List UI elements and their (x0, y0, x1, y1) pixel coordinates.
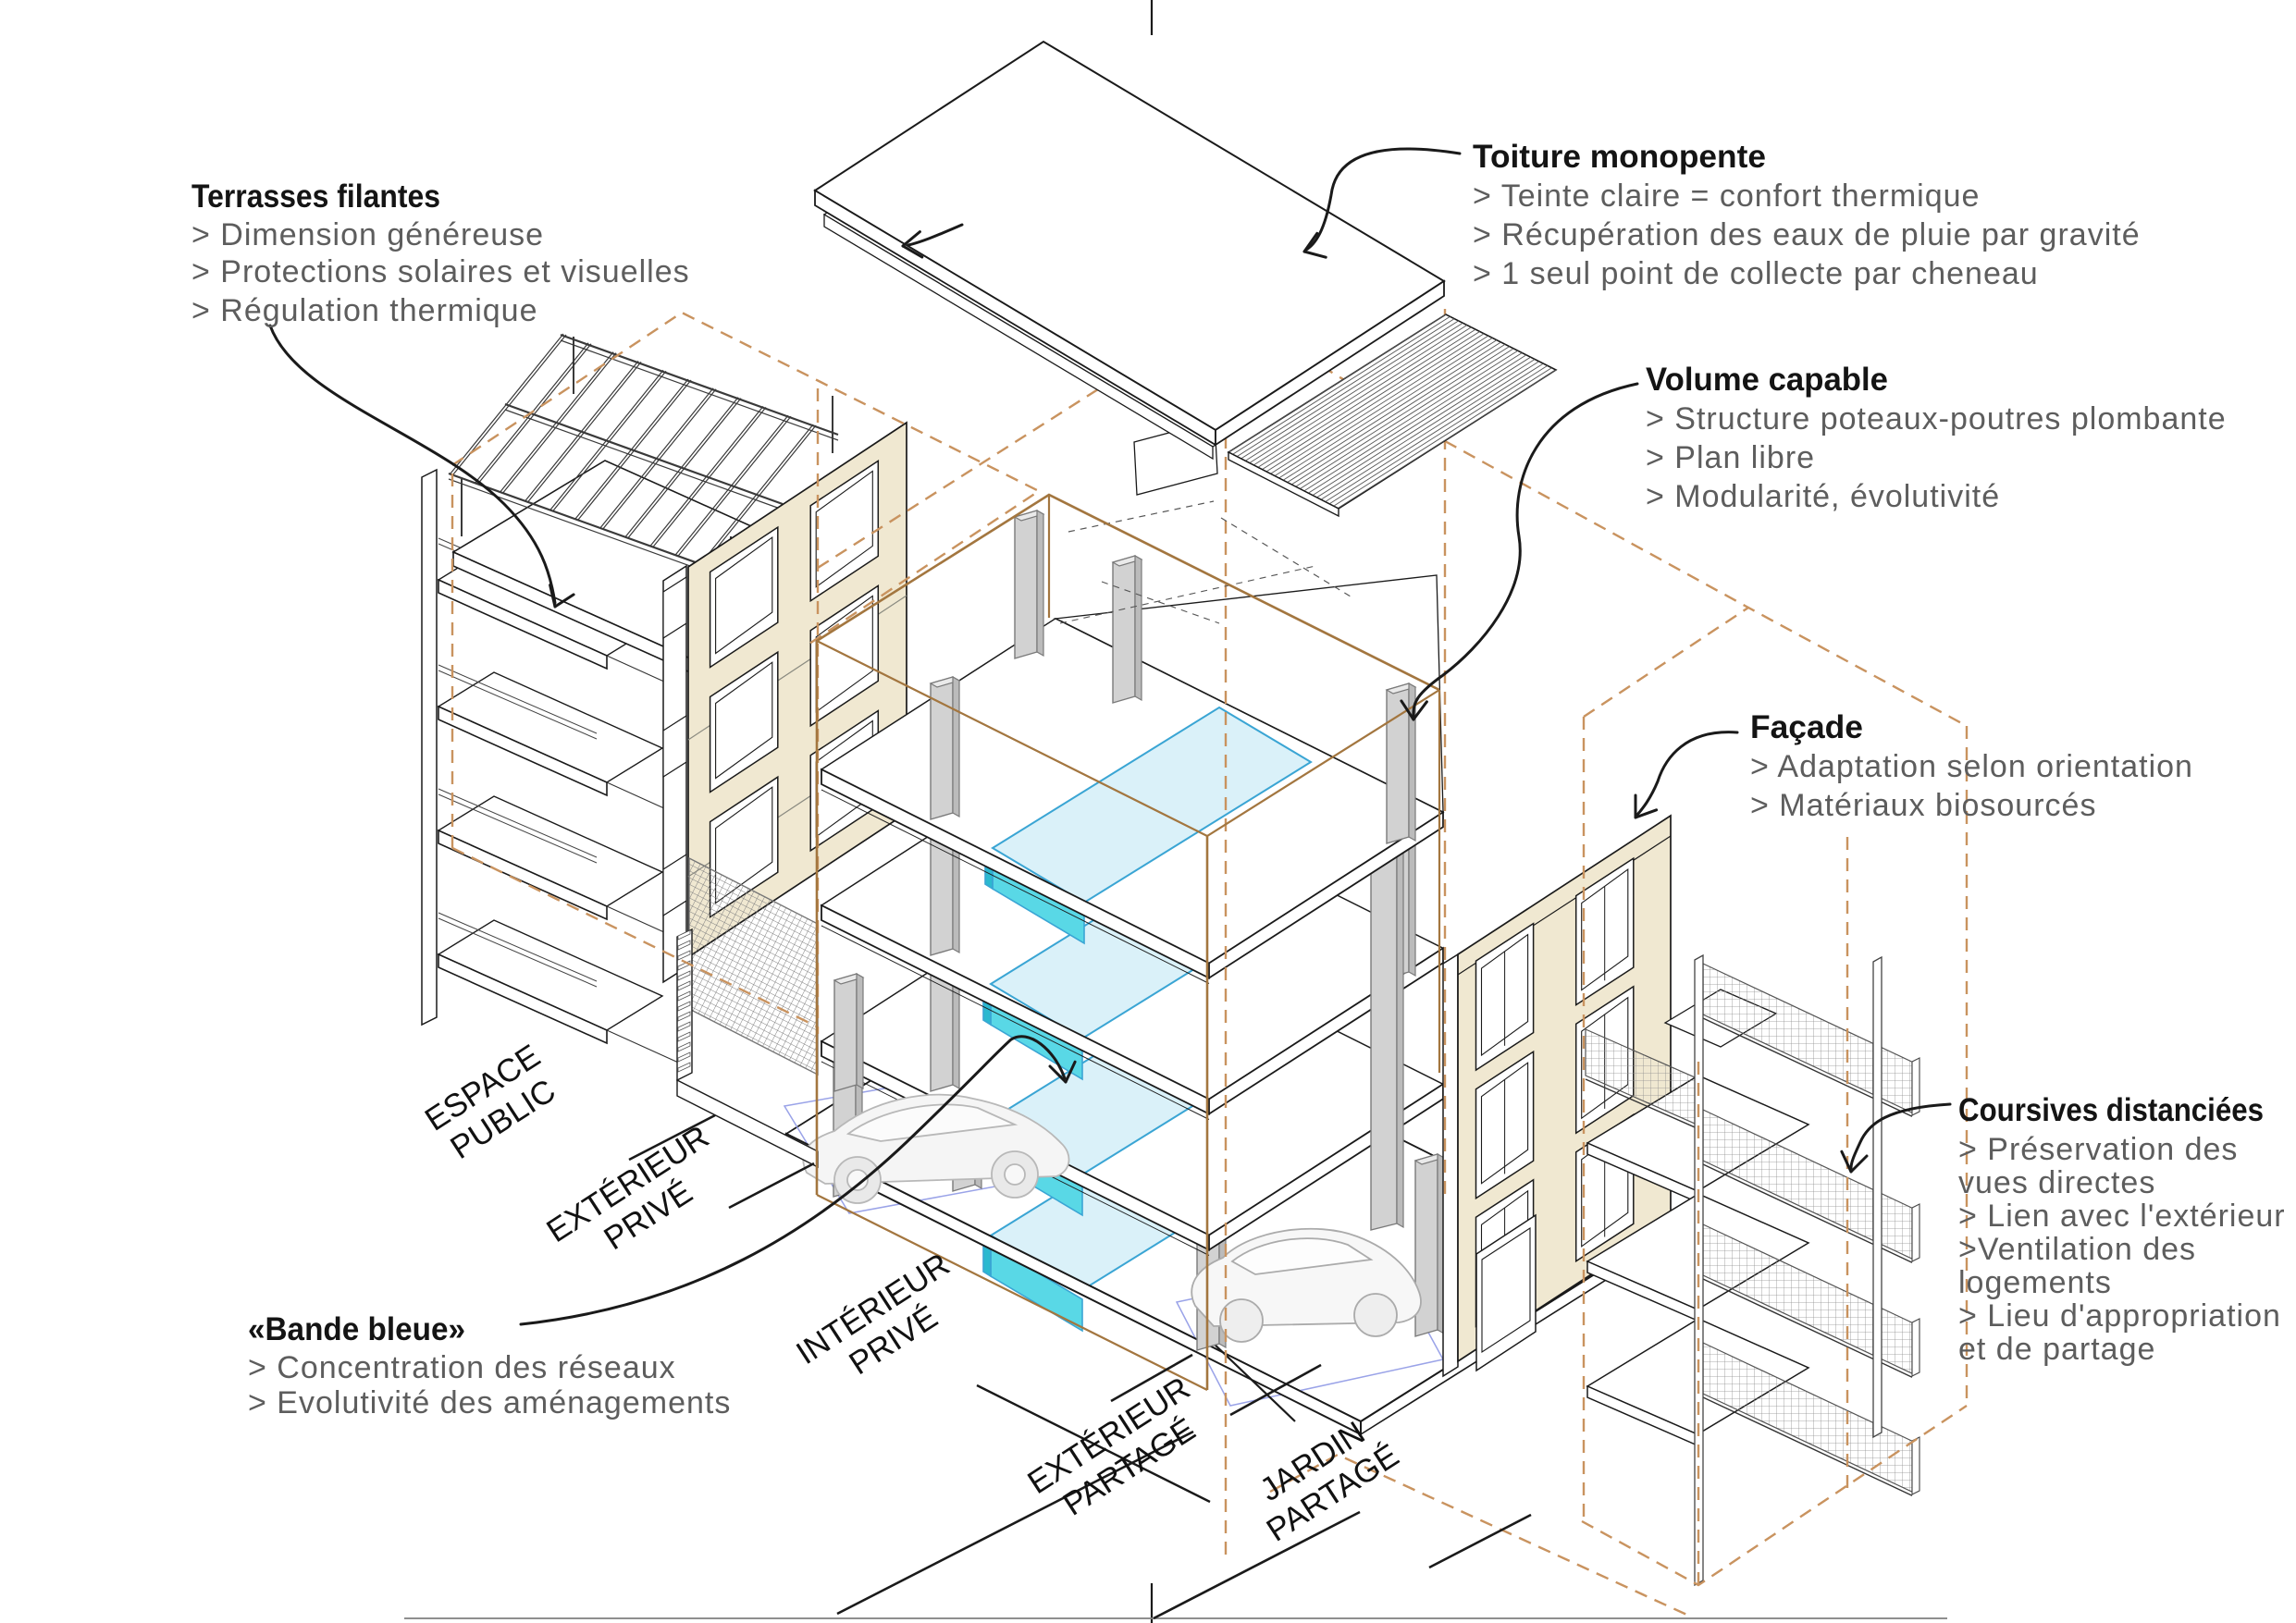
svg-text:Volume capable: Volume capable (1646, 362, 1888, 398)
svg-text:>Ventilation des: >Ventilation des (1958, 1232, 2196, 1267)
svg-text:et de partage: et de partage (1958, 1332, 2155, 1367)
svg-text:> Préservation des: > Préservation des (1958, 1132, 2238, 1167)
svg-text:«Bande bleue»: «Bande bleue» (248, 1311, 465, 1347)
svg-text:Terrasses filantes: Terrasses filantes (191, 178, 440, 215)
svg-text:> Plan libre: > Plan libre (1646, 440, 1815, 475)
svg-text:> Teinte claire = confort ther: > Teinte claire = confort thermique (1473, 178, 1980, 214)
svg-text:> Lieu d'appropriation: > Lieu d'appropriation (1958, 1298, 2281, 1334)
svg-text:> Modularité, évolutivité: > Modularité, évolutivité (1646, 479, 2000, 514)
svg-text:> Dimension généreuse: > Dimension généreuse (191, 217, 544, 252)
svg-text:logements: logements (1958, 1265, 2112, 1300)
svg-text:> Structure poteaux-poutres pl: > Structure poteaux-poutres plombante (1646, 401, 2227, 436)
svg-text:Façade: Façade (1750, 709, 1863, 745)
svg-text:Toiture monopente: Toiture monopente (1473, 139, 1766, 175)
svg-text:> Lien avec l'extérieur: > Lien avec l'extérieur (1958, 1199, 2286, 1234)
svg-text:> Adaptation selon orientation: > Adaptation selon orientation (1750, 749, 2193, 784)
svg-text:> Concentration des réseaux: > Concentration des réseaux (248, 1350, 676, 1385)
svg-text:> Régulation thermique: > Régulation thermique (191, 293, 538, 328)
svg-text:> Evolutivité des aménagements: > Evolutivité des aménagements (248, 1385, 731, 1420)
svg-text:Coursives distanciées: Coursives distanciées (1958, 1092, 2264, 1128)
svg-text:> Récupération des eaux de plu: > Récupération des eaux de pluie par gra… (1473, 217, 2141, 252)
svg-text:> Matériaux biosourcés: > Matériaux biosourcés (1750, 788, 2096, 823)
svg-text:vues directes: vues directes (1958, 1165, 2155, 1200)
svg-text:> Protections solaires et visu: > Protections solaires et visuelles (191, 254, 690, 289)
svg-text:> 1 seul point de collecte par: > 1 seul point de collecte par cheneau (1473, 256, 2039, 291)
